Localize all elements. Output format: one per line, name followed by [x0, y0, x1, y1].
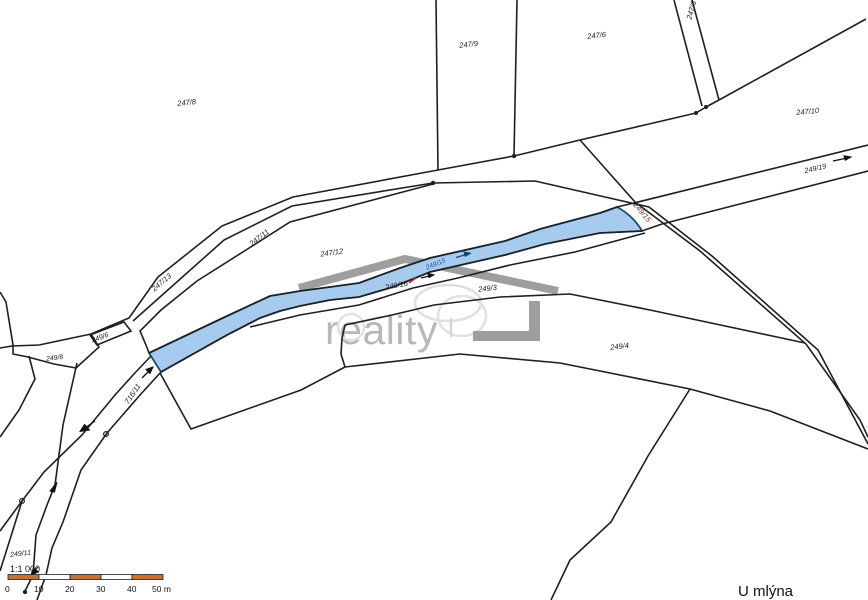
svg-text:1:1 000: 1:1 000 [10, 564, 40, 574]
svg-text:40: 40 [127, 584, 137, 594]
svg-text:U mlýna: U mlýna [738, 583, 794, 600]
svg-text:10: 10 [34, 584, 44, 594]
svg-text:0: 0 [5, 584, 10, 594]
svg-text:50 m: 50 m [152, 584, 171, 594]
svg-text:20: 20 [65, 584, 75, 594]
svg-text:30: 30 [96, 584, 106, 594]
